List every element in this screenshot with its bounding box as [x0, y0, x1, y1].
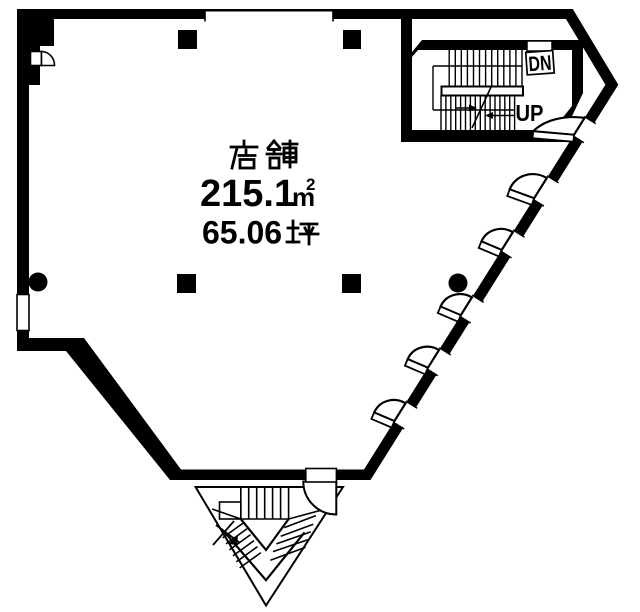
svg-text:DN: DN: [528, 52, 553, 77]
svg-text:UP: UP: [516, 100, 544, 126]
svg-text:215.1: 215.1: [200, 173, 295, 215]
svg-text:2: 2: [306, 175, 315, 194]
svg-text:65.06: 65.06: [202, 215, 282, 251]
